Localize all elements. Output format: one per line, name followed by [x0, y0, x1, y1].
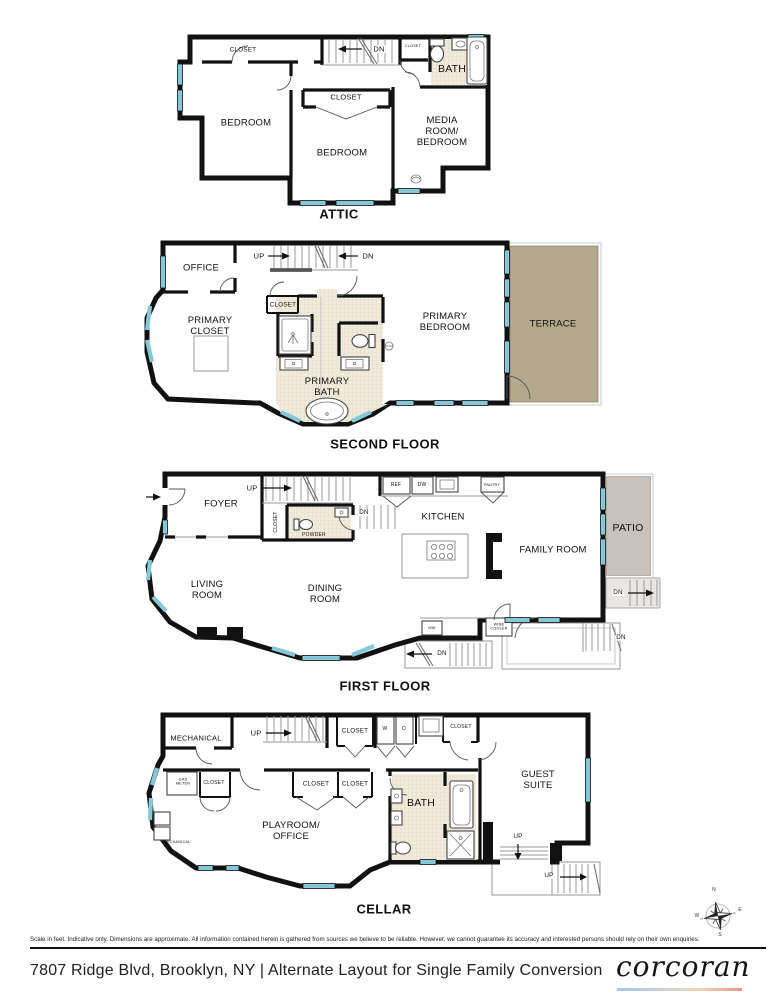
room-label-attic-closet-hall: CLOSET — [405, 44, 421, 48]
shower-icon — [279, 316, 311, 354]
room-label-foyer: FOYER — [204, 498, 238, 509]
room-label-terrace: TERRACE — [530, 318, 577, 329]
stair-label-deck-dn: DN — [615, 635, 627, 641]
kitchen-island-icon — [402, 534, 468, 578]
corcoran-logo-gradient-bar — [617, 988, 742, 991]
room-label-attic-media-room: MEDIA ROOM/ BEDROOM — [417, 115, 468, 149]
room-label-dining-room: DINING ROOM — [308, 583, 342, 605]
room-label-attic-closet-mid: CLOSET — [330, 94, 361, 103]
toilet-icon — [300, 520, 313, 530]
toilet-icon — [352, 335, 368, 348]
label-gas-meter: GAS METER — [176, 778, 190, 787]
floor-title-first: FIRST FLOOR — [339, 678, 430, 693]
stair-label-suite-up: UP — [512, 834, 523, 840]
room-label-attic-closet-tl: CLOSET — [230, 46, 256, 53]
room-label-second-closet: CLOSET — [270, 301, 296, 308]
stair-label-stairwell-dn: DN — [436, 651, 448, 657]
room-label-family-room: FAMILY ROOM — [519, 544, 586, 555]
room-label-powder: POWDER — [302, 533, 326, 539]
mechanical-box — [154, 812, 170, 825]
corcoran-logo: corcoran — [616, 950, 742, 983]
room-label-attic-bedroom-mid: BEDROOM — [317, 147, 368, 158]
floor-title-attic: ATTIC — [319, 206, 358, 221]
label-mechanical-small: MECHANICAL — [164, 840, 191, 844]
floorplan-page: CLOSET DN CLOSET BATH BEDROOM CLOSET BED… — [0, 0, 773, 1000]
room-label-living-room: LIVING ROOM — [191, 579, 223, 601]
appliance-label-ref: REF — [391, 483, 402, 489]
room-label-attic-bedroom-left: BEDROOM — [221, 117, 272, 128]
appliance-label-dw: DW — [418, 483, 427, 489]
stair-label-first-dn: DN — [358, 510, 370, 516]
toilet-tank-icon — [430, 39, 444, 46]
stair-label-cellar-up: UP — [250, 729, 263, 737]
room-label-cellar-closet-c1: CLOSET — [303, 780, 329, 787]
room-label-cellar-closet-hall: CLOSET — [342, 727, 368, 734]
toilet-icon — [431, 46, 444, 62]
stair-label-exterior-up: UP — [543, 873, 554, 879]
stair-label-second-up: UP — [253, 252, 266, 260]
cellar-stairwell — [405, 641, 492, 668]
room-label-pantry: PANTRY — [484, 483, 500, 487]
mechanical-box — [154, 827, 170, 840]
footer-divider — [30, 947, 766, 949]
stair-label-first-up: UP — [246, 484, 259, 492]
floor-title-second: SECOND FLOOR — [330, 436, 440, 451]
disclaimer-text: Scale in feet. Indicative only. Dimensio… — [30, 936, 742, 943]
floorplan-svg — [0, 0, 773, 1000]
room-label-attic-bath: BATH — [438, 63, 466, 75]
toilet-icon — [396, 842, 411, 854]
floor-title-cellar: CELLAR — [356, 901, 411, 916]
compass-east-label: E — [738, 908, 742, 914]
room-label-first-closet: CLOSET — [274, 511, 280, 532]
room-label-patio: PATIO — [613, 522, 644, 534]
rear-deck — [502, 623, 621, 669]
stair-label-attic-dn: DN — [372, 45, 385, 53]
room-label-cellar-closet-tr: CLOSET — [450, 725, 471, 731]
sink-icon — [391, 789, 402, 803]
sink-icon — [391, 811, 402, 825]
closet-island-icon — [194, 336, 228, 371]
room-label-playroom: PLAYROOM/ OFFICE — [262, 820, 320, 842]
stair-label-patio-dn: DN — [612, 590, 624, 596]
room-label-primary-closet: PRIMARY CLOSET — [188, 315, 233, 337]
room-label-guest-suite: GUEST SUITE — [521, 769, 555, 791]
appliance-label-dryer: D — [402, 727, 406, 733]
room-label-cellar-closet-c2: CLOSET — [342, 780, 368, 787]
room-label-cellar-closet-left: CLOSET — [203, 781, 224, 787]
room-label-primary-bedroom: PRIMARY BEDROOM — [420, 311, 471, 333]
sink-icon — [335, 508, 348, 517]
compass-rose — [698, 899, 738, 933]
appliance-label-wine-cooler: WINE COOLER — [490, 623, 507, 632]
kitchen-sink-icon — [436, 477, 458, 492]
appliance-label-mw: MW — [428, 626, 435, 630]
room-label-mechanical: MECHANICAL — [170, 735, 221, 744]
address-line: 7807 Ridge Blvd, Brooklyn, NY | Alternat… — [30, 962, 602, 980]
room-label-office: OFFICE — [183, 262, 219, 273]
room-label-kitchen: KITCHEN — [421, 511, 464, 522]
room-label-primary-bath: PRIMARY BATH — [305, 376, 350, 398]
compass-north-label: N — [712, 888, 716, 894]
appliance-label-washer: W — [383, 727, 388, 733]
stair-label-second-dn: DN — [361, 252, 374, 260]
room-label-cellar-bath: BATH — [407, 797, 435, 809]
compass-west-label: W — [695, 914, 700, 920]
